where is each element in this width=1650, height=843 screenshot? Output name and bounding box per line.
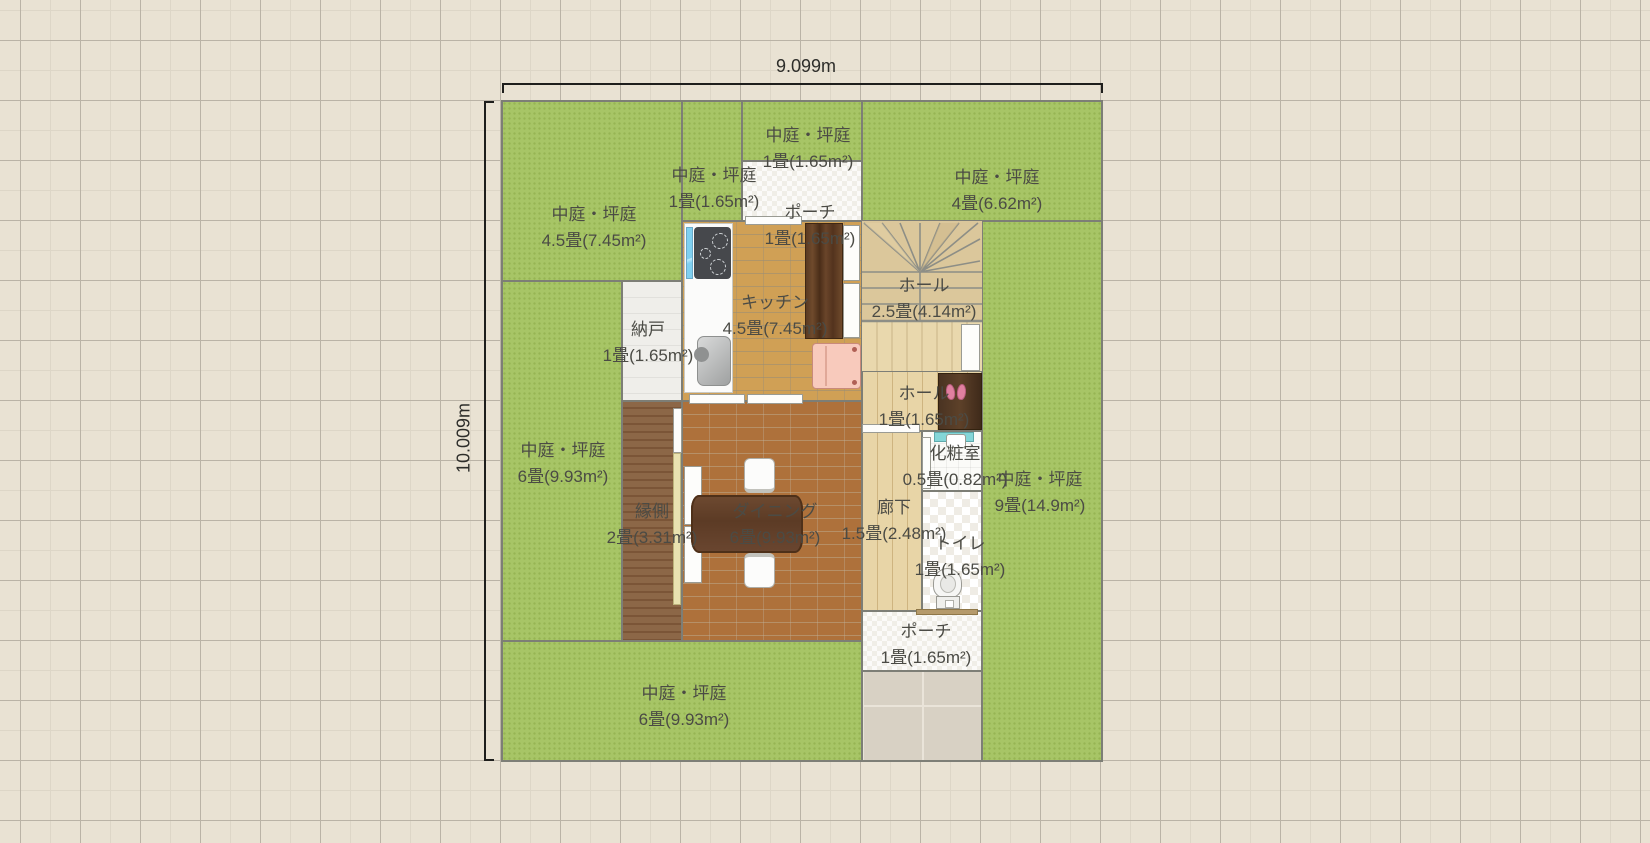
fridge-hinge xyxy=(852,380,857,385)
room-label: 中庭・坪庭6畳(9.93m²) xyxy=(518,438,609,490)
sliding-door-icon[interactable] xyxy=(843,283,860,338)
stove-icon[interactable] xyxy=(694,227,731,279)
chair-icon[interactable] xyxy=(744,553,775,588)
window-icon xyxy=(686,227,693,279)
burner-icon xyxy=(700,248,711,259)
tank-button xyxy=(945,600,954,608)
sliding-door-icon[interactable] xyxy=(747,394,803,404)
approach-path[interactable] xyxy=(862,671,982,761)
door-sill-icon xyxy=(916,609,978,615)
refrigerator-icon[interactable] xyxy=(812,343,861,389)
sliding-door-icon[interactable] xyxy=(673,408,682,453)
fridge-hinge xyxy=(852,347,857,352)
sliding-door-icon[interactable] xyxy=(961,324,980,371)
room-label: 化粧室0.5畳(0.82m²) xyxy=(903,441,1008,493)
chair-icon[interactable] xyxy=(744,458,775,493)
room-label: 中庭・坪庭9畳(14.9m²) xyxy=(995,467,1086,519)
height-dimension-label: 10.009m xyxy=(454,403,475,473)
room-label: ポーチ1畳(1.65m²) xyxy=(881,619,972,671)
room-label: ホール1畳(1.65m²) xyxy=(879,381,970,433)
room-label: 中庭・坪庭4畳(6.62m²) xyxy=(952,165,1043,217)
room-label: キッチン4.5畳(7.45m²) xyxy=(723,290,828,342)
room-label: 中庭・坪庭4.5畳(7.45m²) xyxy=(542,202,647,254)
width-dimension-label: 9.099m xyxy=(776,56,836,77)
room-label: 納戸1畳(1.65m²) xyxy=(603,317,694,369)
room-label: 縁側2畳(3.31m²) xyxy=(607,499,698,551)
room-label: ポーチ1畳(1.65m²) xyxy=(765,200,856,252)
floorplan-canvas: { "canvas": { "background": "#e9e2d3", "… xyxy=(0,0,1650,843)
toilet-tank-icon xyxy=(936,596,960,609)
burner-icon xyxy=(710,259,726,275)
room-label: 中庭・坪庭1畳(1.65m²) xyxy=(669,163,760,215)
room-label: トイレ1畳(1.65m²) xyxy=(915,531,1006,583)
room-label: ホール2.5畳(4.14m²) xyxy=(872,273,977,325)
height-dimension-line xyxy=(484,101,494,761)
burner-icon xyxy=(712,233,728,249)
faucet-icon xyxy=(694,347,709,362)
room-label: 中庭・坪庭1畳(1.65m²) xyxy=(763,123,854,175)
sliding-door-icon[interactable] xyxy=(689,394,745,404)
room-label: ダイニング6畳(9.93m²) xyxy=(730,499,821,551)
room-label: 中庭・坪庭6畳(9.93m²) xyxy=(639,681,730,733)
room-courtyard-top-left[interactable] xyxy=(502,101,682,281)
width-dimension-line xyxy=(502,83,1103,93)
fridge-divider xyxy=(825,346,827,386)
